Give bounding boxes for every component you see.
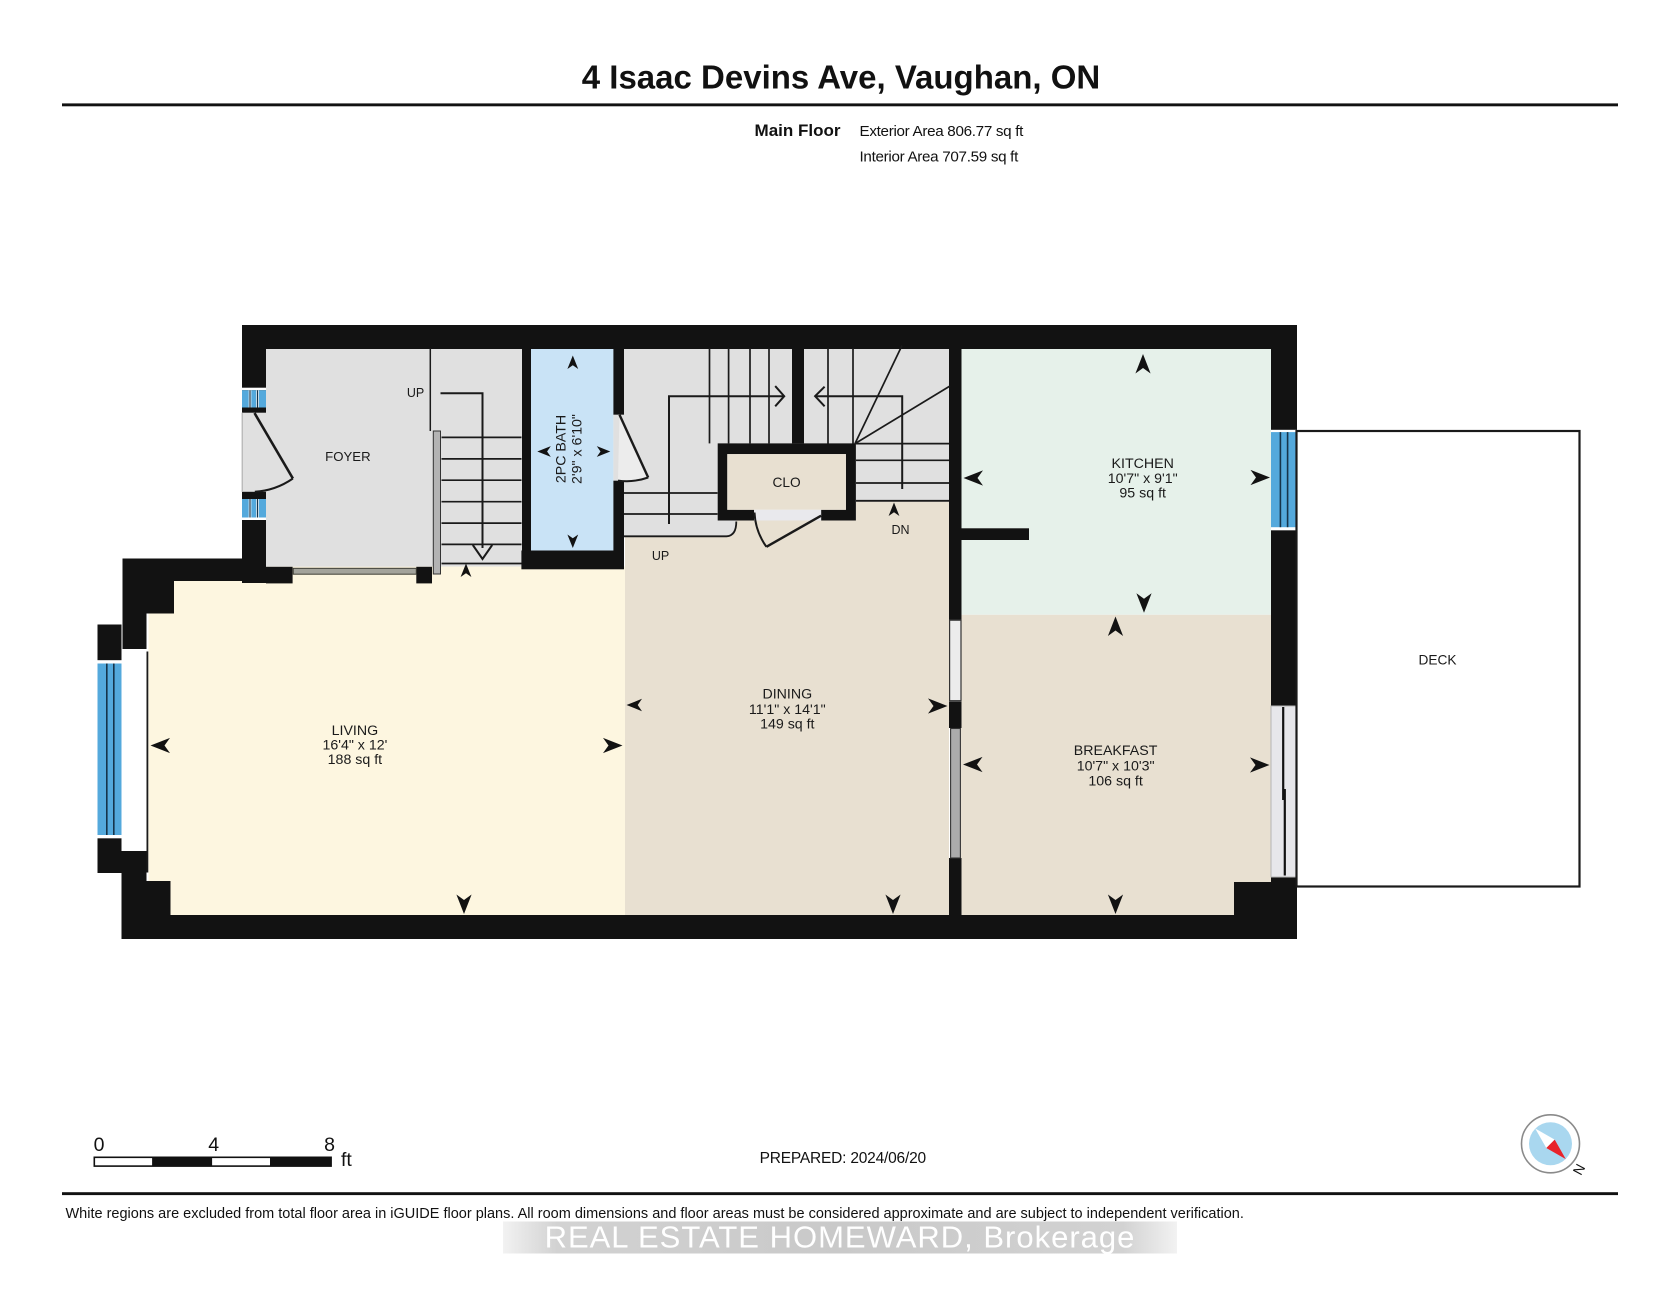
svg-text:ft: ft (341, 1149, 352, 1171)
svg-text:0: 0 (94, 1134, 105, 1156)
svg-text:149 sq ft: 149 sq ft (760, 717, 814, 733)
svg-text:UP: UP (652, 549, 669, 563)
svg-text:10'7" x 10'3": 10'7" x 10'3" (1077, 759, 1155, 775)
svg-text:Main Floor: Main Floor (755, 121, 841, 140)
svg-text:CLO: CLO (773, 475, 801, 490)
svg-text:Exterior Area 806.77 sq ft: Exterior Area 806.77 sq ft (860, 123, 1025, 140)
svg-text:KITCHEN: KITCHEN (1112, 456, 1174, 472)
svg-text:Interior Area 707.59 sq ft: Interior Area 707.59 sq ft (860, 149, 1020, 166)
svg-text:2PC BATH2'9" x 6'10": 2PC BATH2'9" x 6'10" (554, 414, 586, 484)
svg-text:DECK: DECK (1418, 653, 1456, 668)
svg-text:FOYER: FOYER (325, 449, 370, 464)
svg-text:DN: DN (891, 523, 909, 537)
svg-text:BREAKFAST: BREAKFAST (1074, 743, 1158, 759)
svg-text:95 sq ft: 95 sq ft (1119, 486, 1166, 502)
svg-text:PREPARED: 2024/06/20: PREPARED: 2024/06/20 (760, 1150, 927, 1167)
svg-text:4 Isaac Devins Ave, Vaughan, O: 4 Isaac Devins Ave, Vaughan, ON (582, 59, 1100, 96)
svg-text:REAL ESTATE HOMEWARD, Brokerag: REAL ESTATE HOMEWARD, Brokerage (545, 1220, 1136, 1255)
svg-text:DINING: DINING (762, 687, 812, 703)
svg-text:4: 4 (208, 1134, 219, 1156)
svg-text:8: 8 (324, 1134, 335, 1156)
svg-text:UP: UP (407, 386, 424, 400)
svg-text:188 sq ft: 188 sq ft (328, 752, 382, 768)
svg-text:106 sq ft: 106 sq ft (1088, 774, 1142, 790)
